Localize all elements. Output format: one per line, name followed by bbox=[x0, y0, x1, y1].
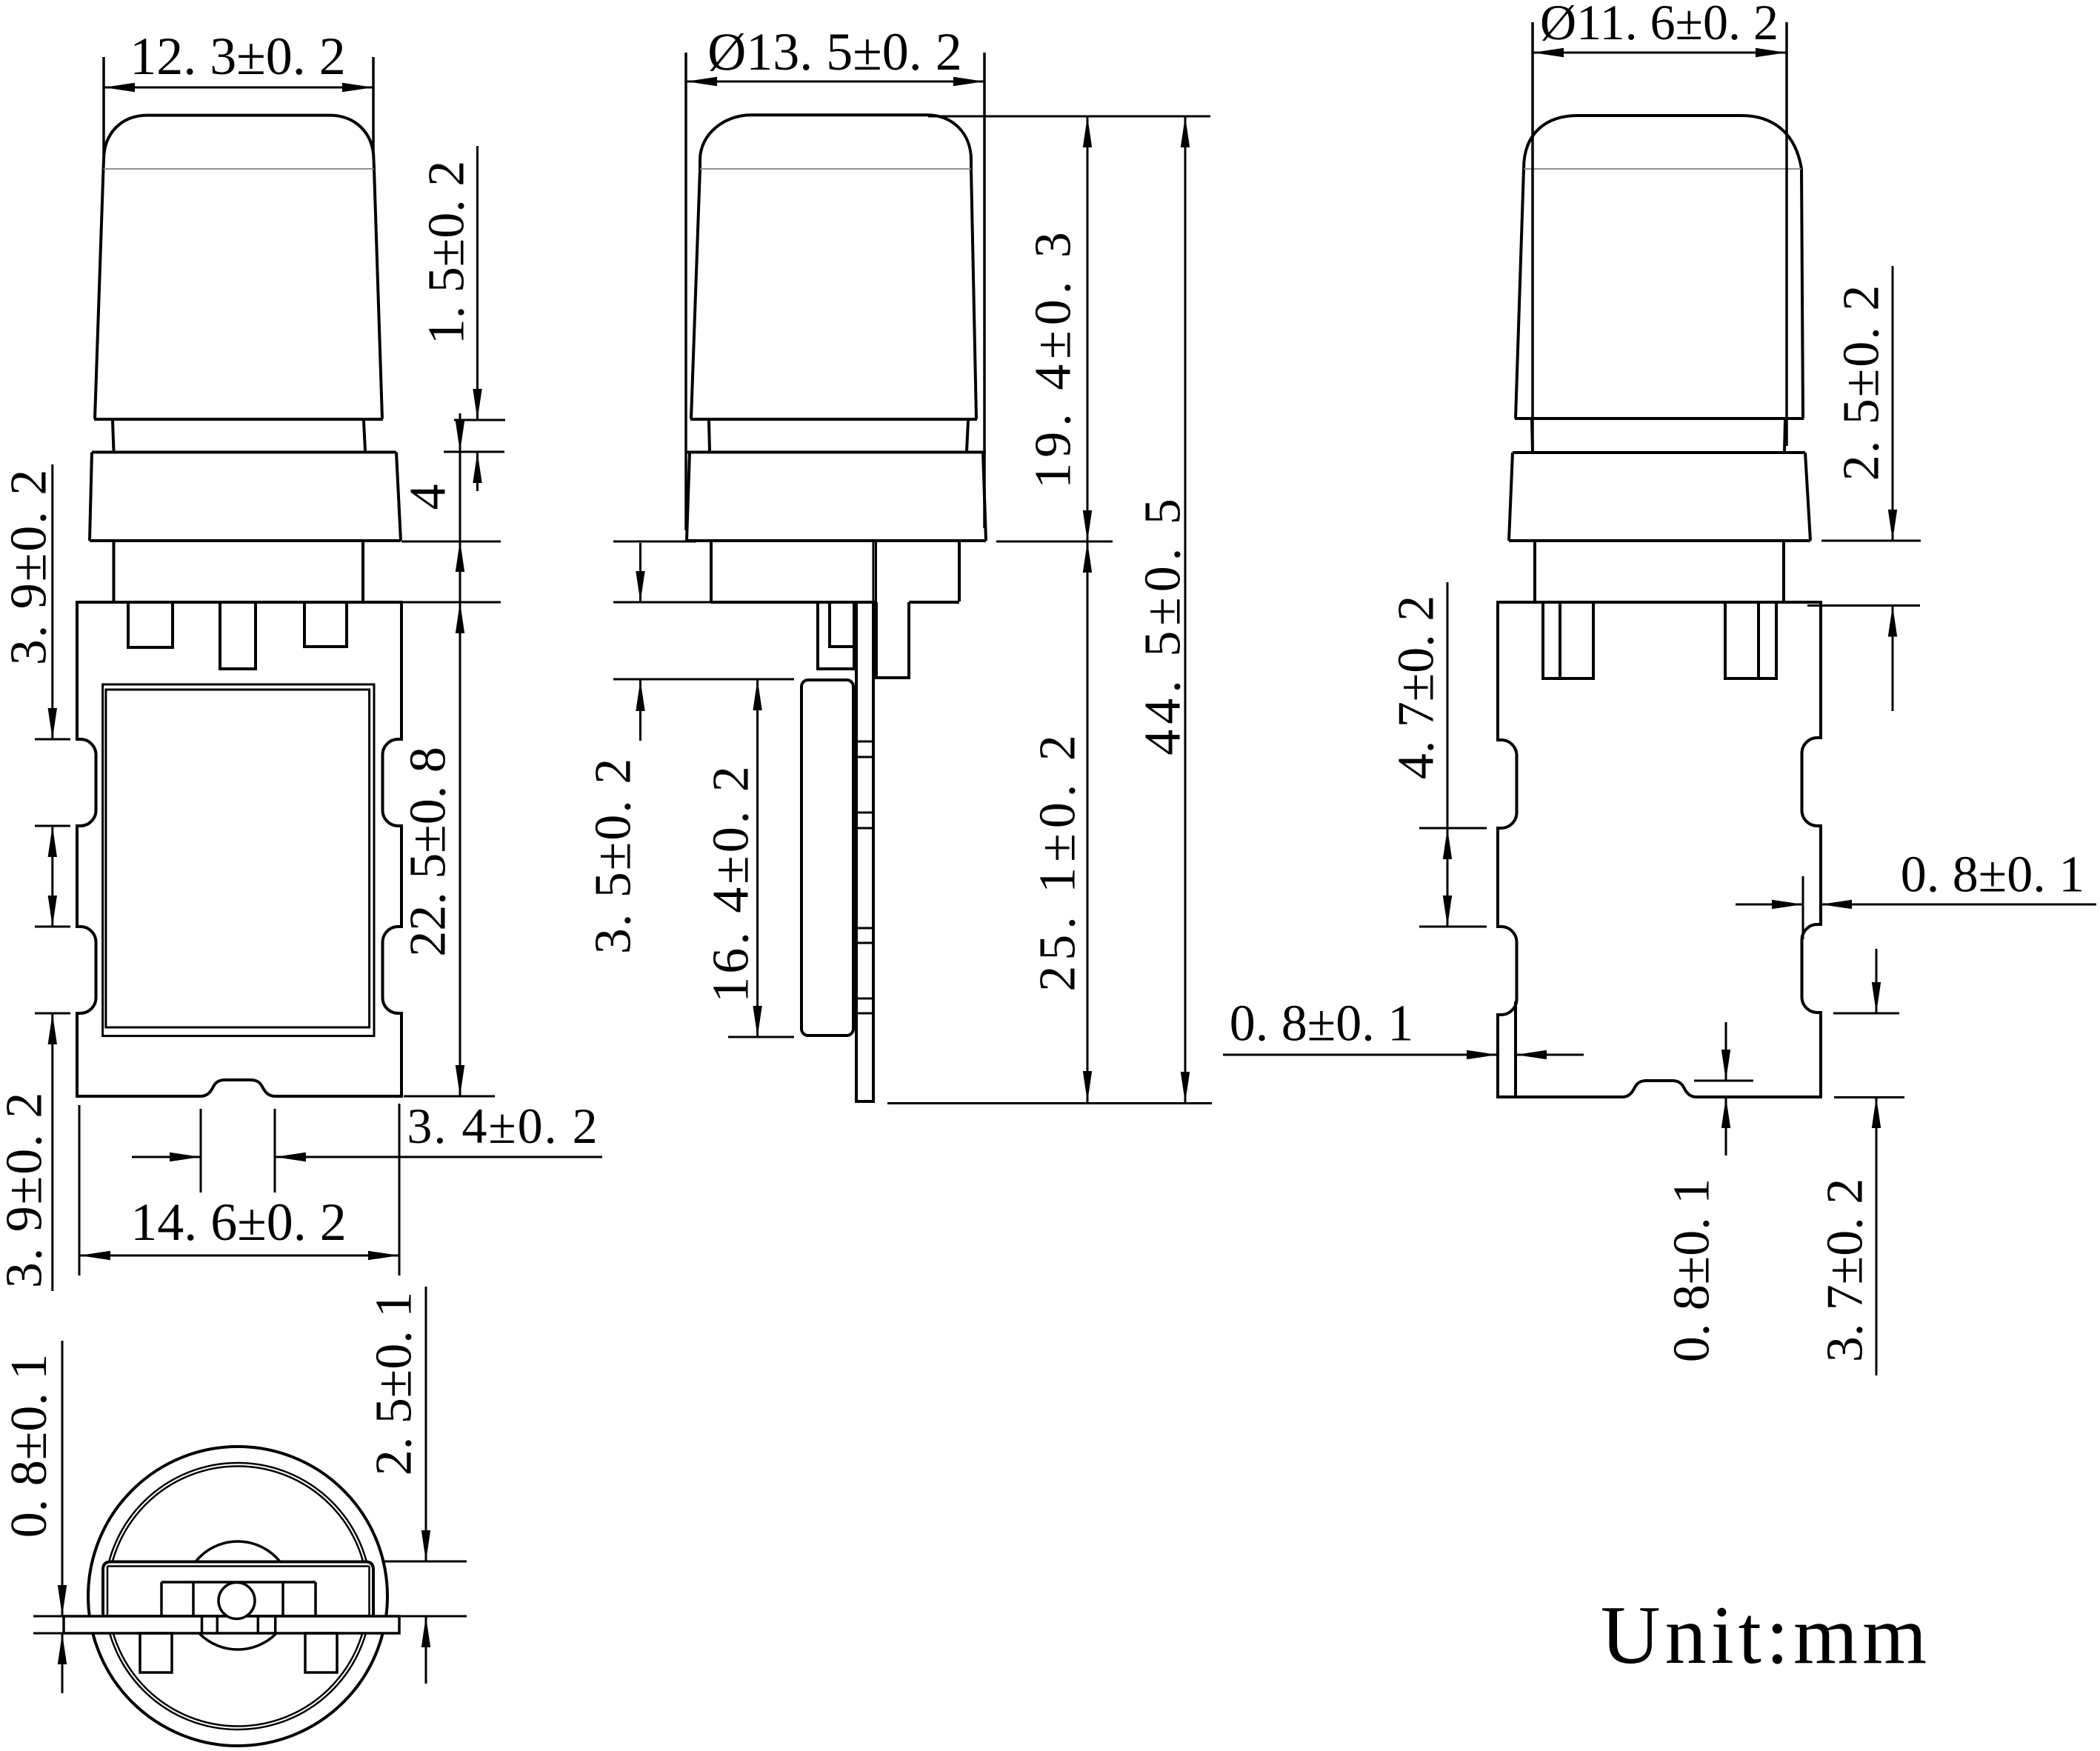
svg-text:2. 5±0. 1: 2. 5±0. 1 bbox=[366, 1292, 423, 1475]
svg-text:12. 3±0. 2: 12. 3±0. 2 bbox=[130, 27, 346, 86]
svg-text:Unit:mm: Unit:mm bbox=[1601, 1590, 1931, 1681]
svg-text:44. 5±0. 5: 44. 5±0. 5 bbox=[1135, 493, 1192, 755]
svg-text:3. 9±0. 2: 3. 9±0. 2 bbox=[0, 1091, 53, 1288]
svg-text:0. 8±0. 1: 0. 8±0. 1 bbox=[1664, 1178, 1721, 1362]
svg-text:14. 6±0. 2: 14. 6±0. 2 bbox=[130, 1193, 347, 1252]
svg-text:3. 7±0. 2: 3. 7±0. 2 bbox=[1817, 1178, 1874, 1362]
svg-text:3. 4±0. 2: 3. 4±0. 2 bbox=[407, 1098, 599, 1154]
svg-text:4. 7±0. 2: 4. 7±0. 2 bbox=[1388, 596, 1445, 779]
svg-text:Ø11. 6±0. 2: Ø11. 6±0. 2 bbox=[1540, 0, 1779, 50]
svg-text:0. 8±0. 1: 0. 8±0. 1 bbox=[1, 1354, 58, 1538]
svg-text:4: 4 bbox=[400, 484, 457, 510]
svg-text:3. 5±0. 2: 3. 5±0. 2 bbox=[585, 757, 642, 954]
svg-text:Ø13. 5±0. 2: Ø13. 5±0. 2 bbox=[707, 22, 962, 81]
svg-text:16. 4±0. 2: 16. 4±0. 2 bbox=[703, 763, 760, 1002]
svg-text:3. 9±0. 2: 3. 9±0. 2 bbox=[1, 468, 58, 665]
svg-text:25. 1±0. 2: 25. 1±0. 2 bbox=[1030, 730, 1087, 991]
svg-text:19. 4±0. 3: 19. 4±0. 3 bbox=[1025, 227, 1082, 488]
svg-text:22. 5±0. 8: 22. 5±0. 8 bbox=[400, 747, 457, 956]
svg-text:2. 5±0. 2: 2. 5±0. 2 bbox=[1833, 284, 1890, 481]
svg-text:0. 8±0. 1: 0. 8±0. 1 bbox=[1901, 847, 2084, 904]
svg-text:0. 8±0. 1: 0. 8±0. 1 bbox=[1230, 995, 1413, 1053]
svg-text:1. 5±0. 2: 1. 5±0. 2 bbox=[419, 161, 476, 344]
